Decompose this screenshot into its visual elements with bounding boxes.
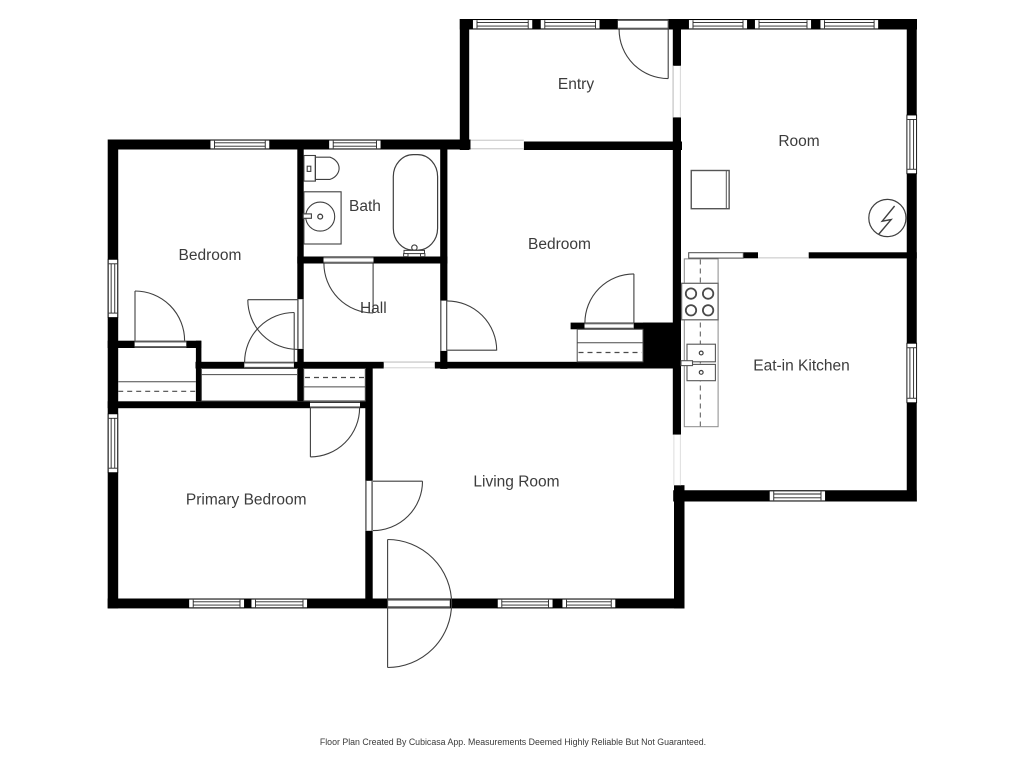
svg-text:Living Room: Living Room bbox=[473, 474, 559, 491]
svg-text:Floor Plan Created By Cubicasa: Floor Plan Created By Cubicasa App. Meas… bbox=[320, 737, 706, 747]
svg-text:Bedroom: Bedroom bbox=[528, 236, 591, 253]
svg-text:Entry: Entry bbox=[558, 76, 594, 93]
svg-text:Primary Bedroom: Primary Bedroom bbox=[186, 492, 307, 509]
svg-text:Room: Room bbox=[778, 133, 819, 150]
svg-text:Bath: Bath bbox=[349, 198, 381, 215]
svg-text:Eat-in Kitchen: Eat-in Kitchen bbox=[753, 358, 850, 375]
svg-text:Hall: Hall bbox=[360, 300, 387, 317]
svg-text:Bedroom: Bedroom bbox=[179, 247, 242, 264]
